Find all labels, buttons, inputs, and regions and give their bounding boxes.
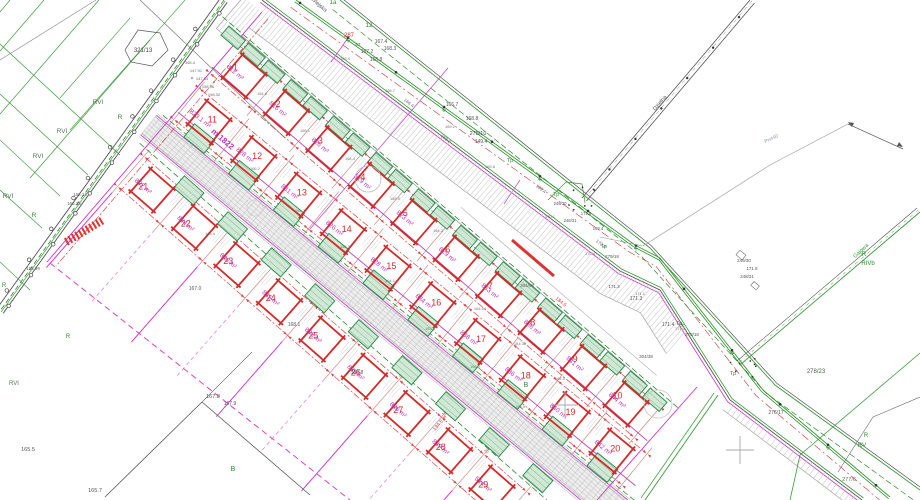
svg-text:168.7: 168.7 — [385, 88, 396, 93]
svg-text:249/30: 249/30 — [737, 258, 751, 263]
svg-text:149.4: 149.4 — [475, 139, 488, 145]
svg-text:R: R — [864, 433, 869, 439]
svg-text:R: R — [2, 283, 7, 289]
svg-text:287: 287 — [344, 33, 355, 39]
svg-text:168.1: 168.1 — [288, 322, 301, 328]
svg-text:12: 12 — [365, 22, 373, 29]
svg-text:171.5: 171.5 — [746, 266, 758, 271]
svg-text:Tp: Tp — [730, 371, 736, 377]
svg-text:R: R — [66, 334, 71, 340]
svg-text:278/18: 278/18 — [685, 332, 699, 337]
svg-text:Tp: Tp — [601, 244, 607, 250]
svg-text:171.3: 171.3 — [608, 284, 620, 289]
svg-text:Tp: Tp — [553, 192, 559, 198]
svg-text:164.7: 164.7 — [295, 208, 306, 213]
svg-text:R: R — [862, 252, 867, 258]
svg-text:167.2: 167.2 — [361, 49, 374, 55]
svg-text:164.8: 164.8 — [257, 91, 268, 96]
svg-text:164.1: 164.1 — [385, 278, 396, 283]
svg-text:165.1: 165.1 — [300, 128, 311, 133]
svg-text:RV: RV — [858, 443, 866, 449]
svg-text:169.2: 169.2 — [445, 124, 456, 129]
svg-text:147.91: 147.91 — [190, 68, 203, 73]
svg-text:RVI: RVI — [9, 381, 19, 387]
svg-text:198.32: 198.32 — [208, 92, 221, 97]
svg-text:171.4: 171.4 — [675, 326, 686, 331]
svg-text:167.8: 167.8 — [206, 394, 220, 400]
svg-text:RIVb: RIVb — [861, 261, 875, 267]
svg-text:R: R — [118, 114, 123, 121]
svg-text:165.4: 165.4 — [185, 60, 196, 65]
svg-text:277/6: 277/6 — [842, 477, 856, 483]
svg-text:304/48: 304/48 — [520, 283, 534, 288]
svg-text:163.2: 163.2 — [470, 364, 481, 369]
svg-text:168.8: 168.8 — [466, 116, 479, 122]
svg-text:147.54: 147.54 — [196, 76, 209, 81]
svg-text:166.2: 166.2 — [250, 166, 261, 171]
svg-text:163.9: 163.9 — [515, 404, 526, 409]
svg-text:168.8: 168.8 — [351, 370, 364, 376]
svg-text:165.7: 165.7 — [88, 488, 102, 494]
svg-text:B: B — [524, 382, 529, 389]
svg-text:169.8: 169.8 — [485, 164, 496, 169]
svg-text:304/38: 304/38 — [639, 354, 653, 359]
svg-text:166.4: 166.4 — [205, 231, 216, 236]
svg-text:RVI: RVI — [57, 128, 68, 135]
svg-text:275/10: 275/10 — [470, 131, 487, 137]
svg-text:165.24: 165.24 — [73, 192, 87, 197]
svg-text:279/18: 279/18 — [605, 254, 619, 259]
svg-text:167.4: 167.4 — [375, 39, 388, 45]
svg-text:170.1: 170.1 — [545, 214, 556, 219]
svg-text:168.3: 168.3 — [384, 46, 397, 52]
svg-text:171.1: 171.1 — [635, 291, 646, 296]
svg-text:169.4: 169.4 — [593, 226, 604, 231]
svg-text:164.5: 164.5 — [555, 376, 566, 381]
svg-text:164.4: 164.4 — [345, 156, 356, 161]
svg-text:248/31: 248/31 — [740, 274, 754, 279]
svg-text:170.4: 170.4 — [585, 251, 596, 256]
svg-text:171.3: 171.3 — [630, 296, 643, 302]
svg-text:165.0: 165.0 — [390, 196, 401, 201]
svg-text:166.7: 166.7 — [446, 102, 459, 108]
svg-text:164.2: 164.2 — [433, 228, 444, 233]
svg-text:R: R — [32, 212, 37, 219]
svg-text:163.8: 163.8 — [425, 326, 436, 331]
svg-text:cz: cz — [356, 42, 362, 48]
svg-text:171.4: 171.4 — [662, 322, 675, 328]
svg-text:171.6: 171.6 — [581, 211, 592, 216]
svg-text:164.38: 164.38 — [514, 341, 527, 346]
svg-text:165.99: 165.99 — [26, 266, 40, 271]
svg-text:167.9: 167.9 — [224, 401, 237, 407]
svg-text:Tp: Tp — [507, 158, 513, 164]
svg-text:1a: 1a — [330, 0, 337, 6]
svg-text:165.35: 165.35 — [67, 201, 81, 206]
svg-text:321/13: 321/13 — [134, 48, 153, 54]
svg-text:168.4: 168.4 — [340, 56, 351, 61]
svg-text:167.0: 167.0 — [189, 286, 202, 292]
svg-text:165.3: 165.3 — [340, 244, 351, 249]
svg-text:RVI: RVI — [33, 153, 44, 160]
svg-text:168.8: 168.8 — [370, 57, 383, 63]
svg-text:RVI: RVI — [93, 99, 104, 106]
svg-text:276/17: 276/17 — [768, 410, 784, 416]
svg-text:164.94: 164.94 — [474, 306, 487, 311]
svg-text:249/30: 249/30 — [554, 201, 567, 206]
svg-text:165.5: 165.5 — [21, 447, 35, 453]
svg-text:RVI: RVI — [3, 193, 14, 200]
svg-text:B: B — [231, 466, 236, 473]
svg-text:278/23: 278/23 — [807, 369, 826, 375]
svg-text:248/31: 248/31 — [564, 218, 577, 223]
